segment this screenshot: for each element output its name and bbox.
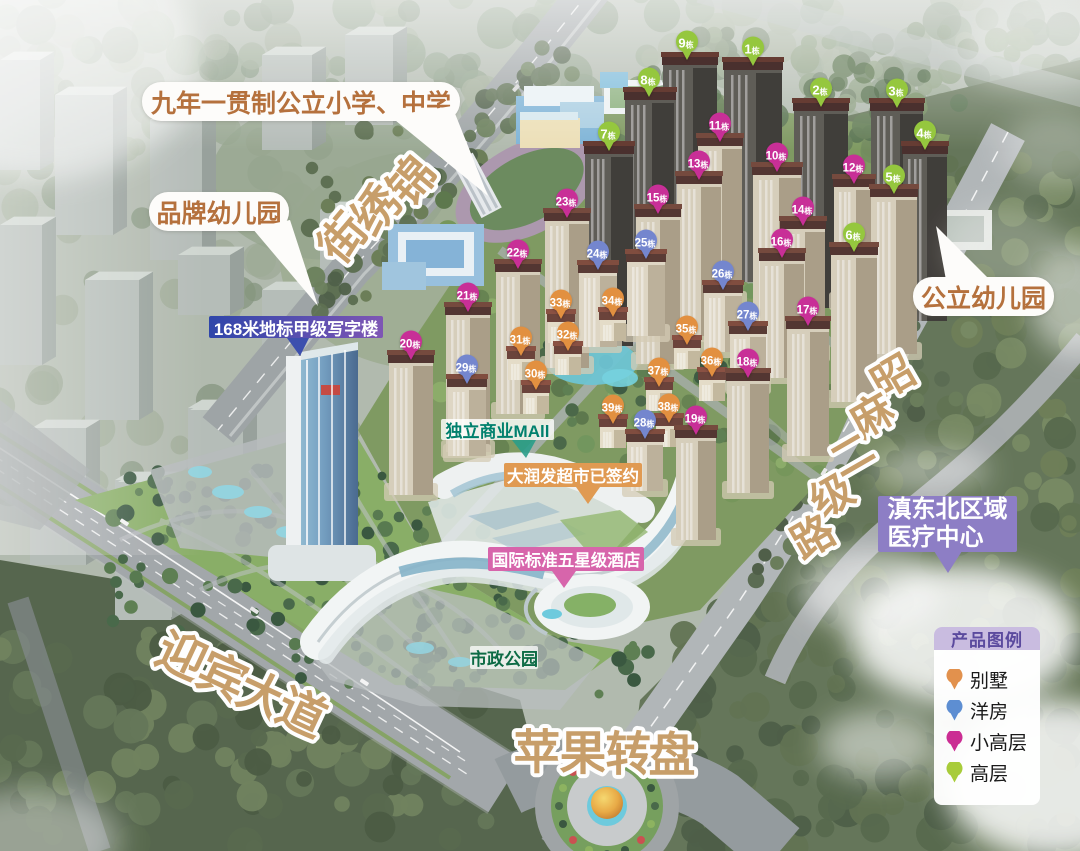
svg-text:17栋: 17栋	[797, 305, 818, 317]
svg-text:37栋: 37栋	[648, 366, 669, 378]
svg-text:16栋: 16栋	[771, 237, 792, 249]
svg-text:18栋: 18栋	[737, 357, 758, 369]
svg-text:31栋: 31栋	[510, 335, 531, 347]
svg-text:23栋: 23栋	[556, 197, 577, 209]
svg-text:39栋: 39栋	[602, 403, 623, 415]
svg-text:30栋: 30栋	[525, 369, 546, 381]
svg-text:15栋: 15栋	[647, 193, 668, 205]
svg-text:19栋: 19栋	[685, 414, 706, 426]
svg-text:32栋: 32栋	[557, 330, 578, 342]
svg-text:28栋: 28栋	[634, 418, 655, 430]
svg-text:21栋: 21栋	[457, 291, 478, 303]
svg-text:11栋: 11栋	[709, 121, 729, 133]
svg-text:20栋: 20栋	[400, 339, 421, 351]
svg-text:14栋: 14栋	[792, 205, 813, 217]
svg-text:26栋: 26栋	[712, 269, 733, 281]
svg-text:34栋: 34栋	[602, 296, 623, 308]
svg-text:22栋: 22栋	[507, 248, 528, 260]
svg-text:33栋: 33栋	[550, 298, 571, 310]
svg-text:35栋: 35栋	[676, 324, 697, 336]
svg-text:12栋: 12栋	[843, 163, 864, 175]
svg-text:24栋: 24栋	[587, 249, 608, 261]
svg-text:38栋: 38栋	[658, 402, 679, 414]
svg-text:10栋: 10栋	[766, 151, 787, 163]
svg-text:25栋: 25栋	[635, 238, 656, 250]
svg-text:13栋: 13栋	[688, 159, 709, 171]
svg-text:27栋: 27栋	[737, 310, 758, 322]
svg-text:36栋: 36栋	[701, 356, 722, 368]
svg-text:29栋: 29栋	[456, 363, 477, 375]
